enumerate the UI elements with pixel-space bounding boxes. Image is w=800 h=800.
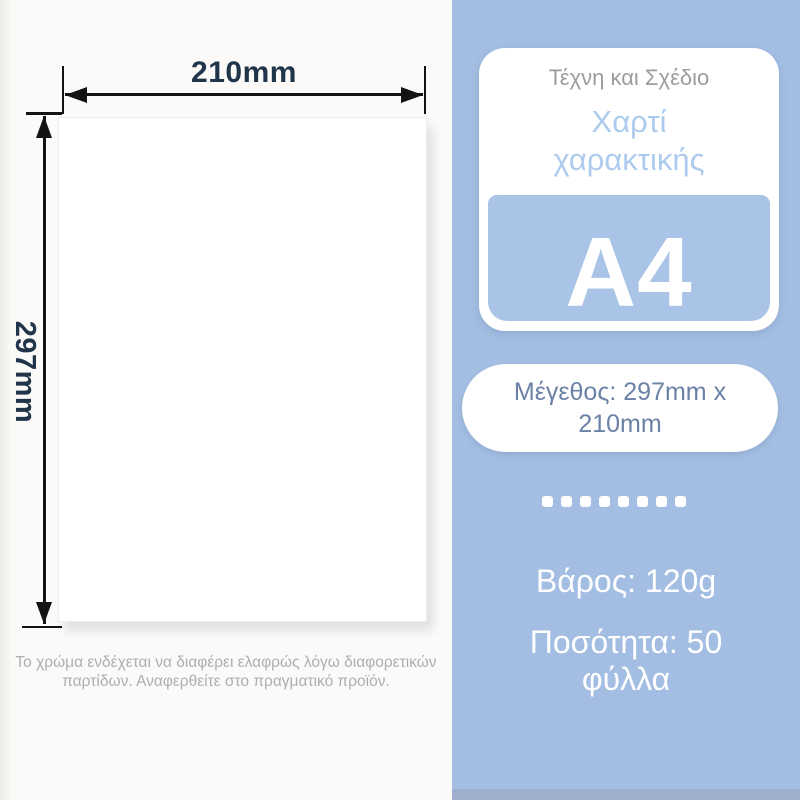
product-card: Τέχνη και Σχέδιο Χαρτί χαρακτικής A4 <box>479 48 779 331</box>
dot-icon <box>618 496 629 507</box>
category-label: Τέχνη και Σχέδιο <box>479 65 779 91</box>
dot-icon <box>561 496 572 507</box>
bottom-edge <box>452 789 800 800</box>
dot-icon <box>656 496 667 507</box>
dot-icon <box>580 496 591 507</box>
dot-icon <box>542 496 553 507</box>
arrowhead-down-icon <box>36 602 52 624</box>
height-label: 297mm <box>5 313 41 431</box>
info-panel: Τέχνη και Σχέδιο Χαρτί χαρακτικής A4 Μέγ… <box>452 0 800 800</box>
weight-text: Βάρος: 120g <box>452 563 800 600</box>
dot-icon <box>599 496 610 507</box>
product-banner: 210mm 297mm Το χρώμα ενδέχεται να διαφέρ… <box>0 0 800 800</box>
size-badge-text: Μέγεθος: 297mm x 210mm <box>492 376 748 441</box>
size-badge: Μέγεθος: 297mm x 210mm <box>462 364 778 452</box>
top-tick <box>26 112 62 115</box>
dot-icon <box>637 496 648 507</box>
paper-sheet <box>58 117 427 622</box>
product-name: Χαρτί χαρακτικής <box>529 103 729 179</box>
quantity-text: Ποσότητα: 50 φύλλα <box>496 624 756 699</box>
dimension-line <box>65 93 423 96</box>
disclaimer-text: Το χρώμα ενδέχεται να διαφέρει ελαφρώς λ… <box>0 653 452 692</box>
dot-icon <box>675 496 686 507</box>
dots-separator <box>440 496 788 508</box>
size-code: A4 <box>565 223 692 321</box>
size-code-box: A4 <box>488 195 770 321</box>
width-label: 210mm <box>62 56 426 90</box>
dimension-line <box>43 116 46 624</box>
bottom-tick <box>22 626 62 629</box>
arrowhead-up-icon <box>36 116 52 138</box>
paper-diagram-area: 210mm 297mm Το χρώμα ενδέχεται να διαφέρ… <box>0 0 452 800</box>
